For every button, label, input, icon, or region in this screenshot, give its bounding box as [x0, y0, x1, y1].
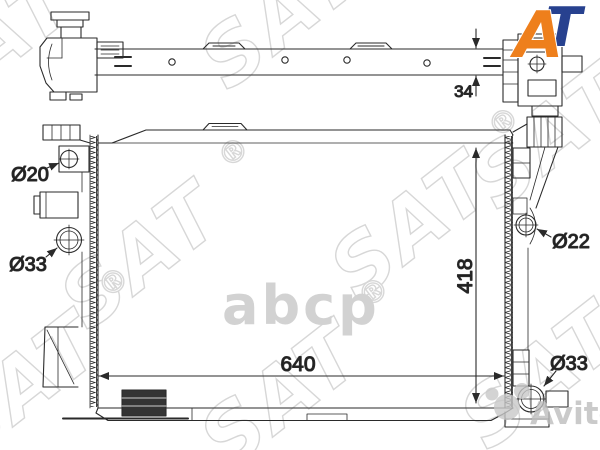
dimension-640: 640	[99, 353, 504, 376]
avito-dot-icon	[514, 383, 530, 399]
mount-hole	[169, 59, 175, 65]
avito-dot-icon	[494, 394, 520, 420]
dimension-34: 34	[454, 29, 476, 101]
core-height-value: 418	[454, 258, 477, 293]
mount-hole	[344, 57, 350, 63]
core-width-value: 640	[280, 353, 315, 376]
abcp-watermark: abcp	[222, 274, 380, 337]
callout-outlet-diameter: Ø33	[550, 353, 588, 375]
tank-depth-value: 34	[454, 82, 473, 101]
callout-right-pipe-diameter: Ø22	[552, 231, 590, 253]
radiator-technical-drawing: SAT ® abcp	[0, 0, 600, 450]
avito-watermark-text: Avito	[530, 396, 600, 432]
callout-left-hose-diameter: Ø33	[9, 254, 47, 276]
mount-hole	[424, 60, 430, 66]
callout-inlet-diameter: Ø20	[11, 164, 49, 186]
avito-dot-icon	[486, 388, 499, 401]
sat-watermark	[182, 0, 432, 107]
at-logo-letter-a: A	[509, 0, 564, 73]
